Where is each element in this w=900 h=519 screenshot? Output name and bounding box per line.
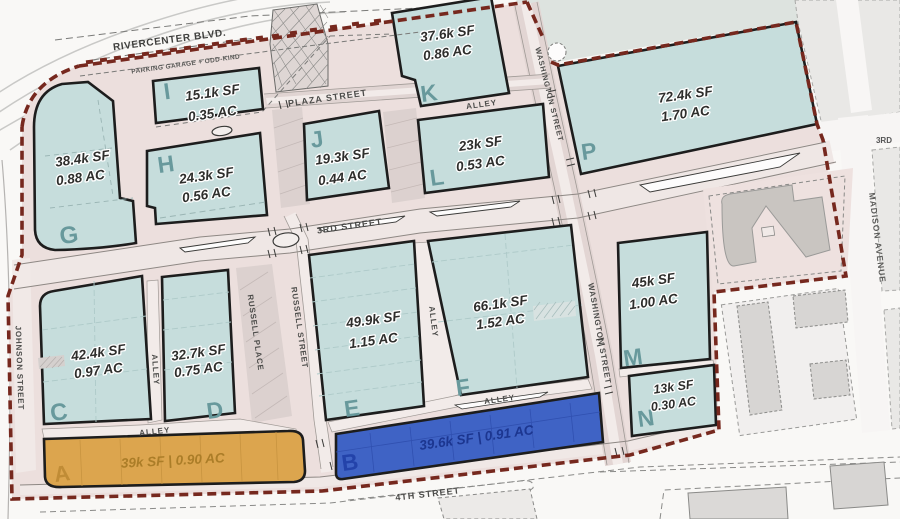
svg-text:M: M xyxy=(622,343,645,371)
svg-text:G: G xyxy=(58,221,80,250)
svg-text:3RD: 3RD xyxy=(876,136,892,145)
